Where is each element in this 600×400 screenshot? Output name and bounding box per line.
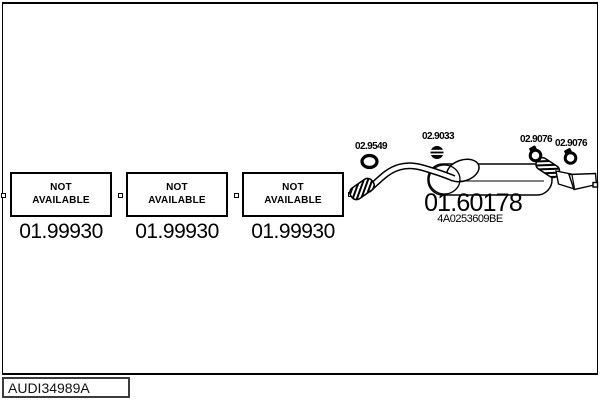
pipe-connector-square: [1, 193, 6, 198]
not-available-label: AVAILABLE: [148, 195, 206, 208]
pipe-connector-square: [234, 193, 239, 198]
not-available-label: NOT: [50, 182, 72, 195]
part-number-link[interactable]: 01.99930: [126, 220, 228, 244]
clamp-icon: [529, 145, 541, 161]
fitting-part-number[interactable]: 02.9033: [422, 131, 454, 142]
not-available-box: NOT AVAILABLE: [126, 172, 228, 217]
pipe-connector-square: [118, 193, 123, 198]
fitting-part-number[interactable]: 02.9076: [555, 138, 587, 149]
not-available-label: NOT: [166, 182, 188, 195]
fitting-part-number[interactable]: 02.9549: [355, 141, 387, 152]
not-available-label: AVAILABLE: [32, 195, 90, 208]
hanger-square: [593, 183, 598, 188]
part-number-link[interactable]: 01.99930: [242, 220, 344, 244]
fitting-part-number[interactable]: 02.9076: [520, 134, 552, 145]
not-available-label: AVAILABLE: [264, 195, 322, 208]
flex-coupling: [348, 176, 377, 202]
muffler-oem-reference: 4A0253609BE: [437, 213, 502, 225]
not-available-label: NOT: [282, 182, 304, 195]
not-available-box: NOT AVAILABLE: [242, 172, 344, 217]
gasket-ring-icon: [362, 156, 377, 168]
diagram-code-box: AUDI34989A: [2, 377, 130, 398]
exhaust-parts-diagram: NOT AVAILABLE NOT AVAILABLE NOT AVAILABL…: [0, 0, 600, 400]
not-available-box: NOT AVAILABLE: [10, 172, 112, 217]
part-number-link[interactable]: 01.99930: [10, 220, 112, 244]
diagram-code: AUDI34989A: [8, 380, 90, 396]
clamp-icon: [564, 148, 576, 164]
clamp-icon: [430, 146, 445, 159]
